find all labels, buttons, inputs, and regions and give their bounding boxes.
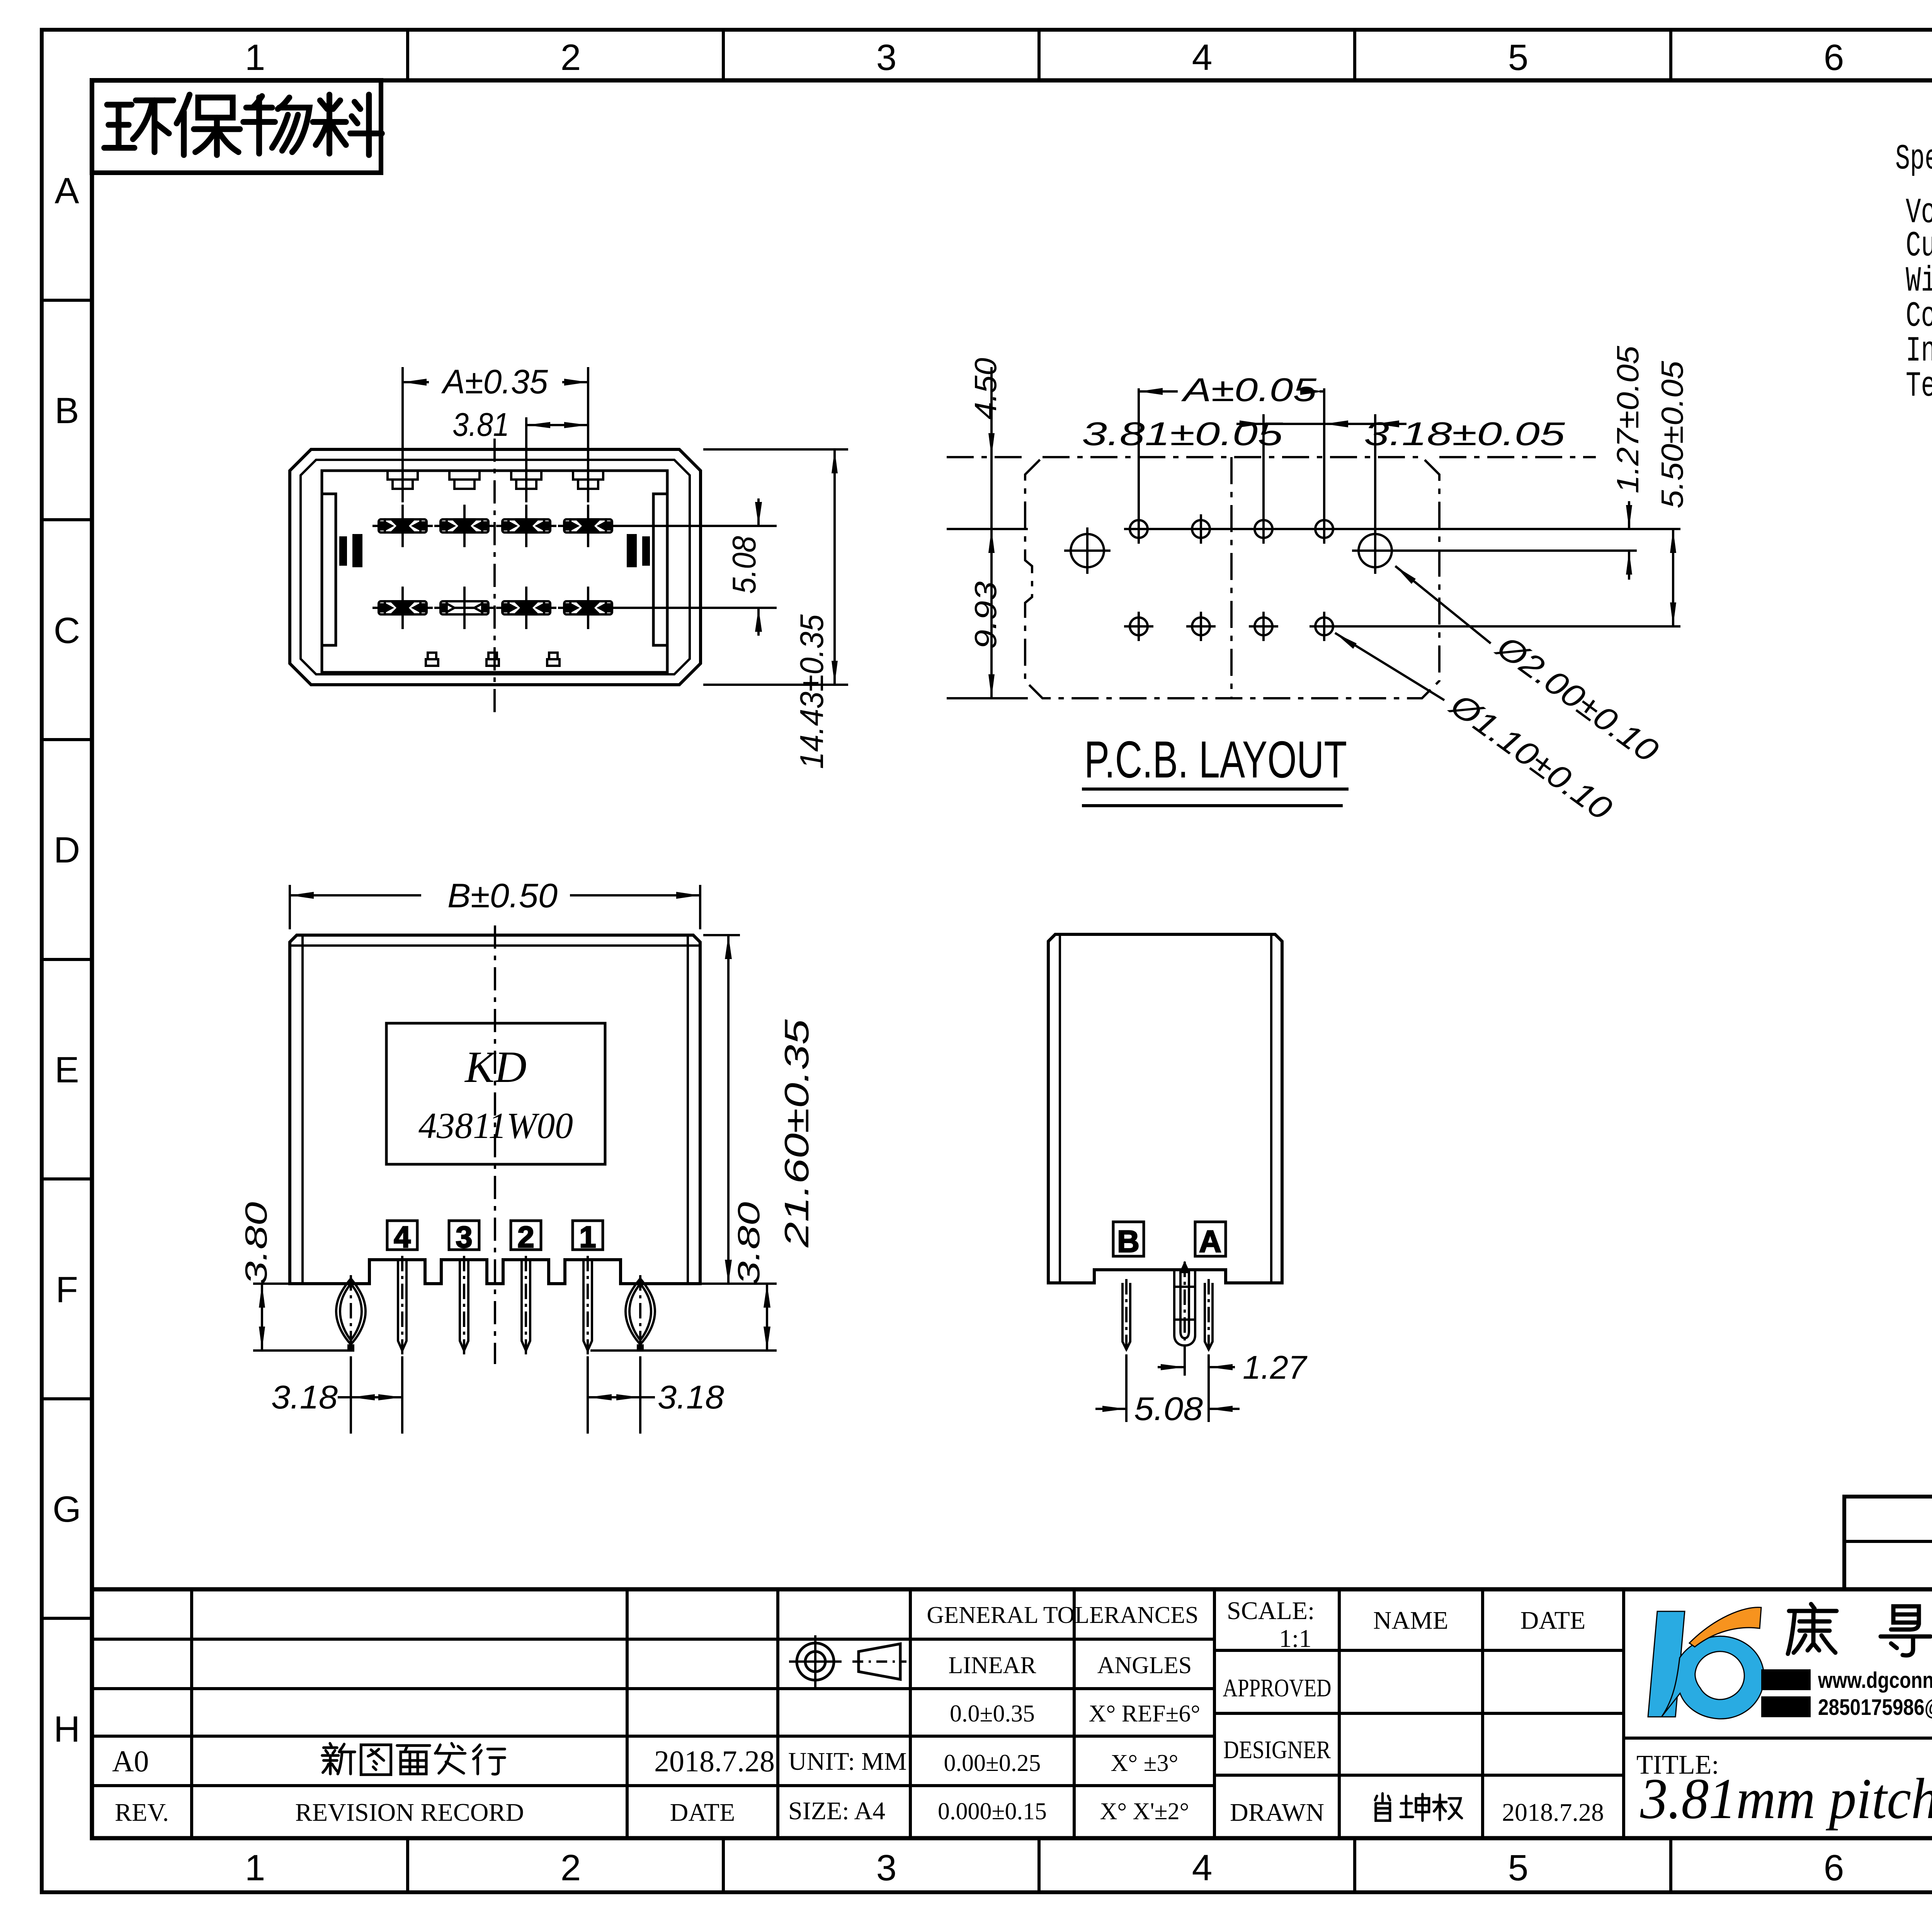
svg-text:43811W00: 43811W00 (418, 1105, 573, 1146)
svg-text:1: 1 (579, 1220, 596, 1254)
svg-text:A0: A0 (112, 1744, 149, 1778)
svg-text:SIZE: A4: SIZE: A4 (788, 1797, 885, 1825)
svg-text:1.27±0.05: 1.27±0.05 (1611, 345, 1645, 493)
svg-text:REVISION RECORD: REVISION RECORD (295, 1798, 524, 1827)
svg-text:21.60±0.35: 21.60±0.35 (777, 1019, 816, 1248)
svg-text:0.0±0.35: 0.0±0.35 (950, 1701, 1035, 1727)
svg-text:2018.7.28: 2018.7.28 (1502, 1798, 1604, 1827)
svg-text:B: B (1117, 1224, 1139, 1259)
svg-text:5: 5 (1508, 1847, 1529, 1888)
svg-text:C: C (54, 610, 80, 651)
svg-text:4: 4 (394, 1220, 410, 1254)
svg-text:A±0.35: A±0.35 (441, 362, 548, 401)
svg-text:3: 3 (876, 1847, 897, 1888)
svg-text:1.27: 1.27 (1243, 1349, 1308, 1386)
svg-text:1: 1 (245, 37, 265, 78)
svg-text:2: 2 (561, 37, 581, 78)
svg-text:P.C.B. LAYOUT: P.C.B. LAYOUT (1084, 730, 1347, 789)
svg-text:G: G (53, 1489, 81, 1530)
svg-text:A: A (54, 170, 79, 211)
svg-text:B±0.50: B±0.50 (447, 876, 558, 915)
svg-text:Withstand Voltage : 1500V AC/m: Withstand Voltage : 1500V AC/minute (1906, 261, 1932, 301)
svg-text:NAME: NAME (1373, 1606, 1448, 1635)
svg-text:4: 4 (1192, 1847, 1213, 1888)
svg-text:X° X'±2°: X° X'±2° (1100, 1798, 1189, 1825)
svg-text:3: 3 (456, 1220, 472, 1254)
svg-text:6: 6 (1824, 1847, 1844, 1888)
svg-text:2: 2 (561, 1847, 581, 1888)
svg-text:5.08: 5.08 (726, 536, 763, 594)
svg-text:2018.7.28: 2018.7.28 (654, 1744, 775, 1778)
svg-text:2850175986@qq.com: 2850175986@qq.com (1818, 1695, 1932, 1720)
svg-text:3.18±0.05: 3.18±0.05 (1364, 416, 1565, 452)
svg-text:ANGLES: ANGLES (1097, 1652, 1192, 1679)
svg-text:UNIT: MM: UNIT: MM (788, 1747, 907, 1776)
svg-text:SCALE:: SCALE: (1227, 1597, 1315, 1625)
svg-text:F: F (56, 1269, 78, 1310)
svg-text:D: D (54, 830, 80, 871)
svg-text:5.50±0.05: 5.50±0.05 (1655, 361, 1689, 509)
svg-text:3.81mm pitch Dual Wafer: 3.81mm pitch Dual Wafer (1640, 1767, 1932, 1831)
svg-text:GENERAL TOLERANCES: GENERAL TOLERANCES (927, 1602, 1198, 1628)
svg-text:3.80: 3.80 (731, 1202, 766, 1285)
svg-text:3.18: 3.18 (271, 1379, 338, 1416)
svg-text:APPROVED: APPROVED (1223, 1674, 1332, 1702)
svg-text:A: A (1199, 1224, 1221, 1259)
svg-text:0.00±0.25: 0.00±0.25 (944, 1750, 1041, 1776)
svg-text:B: B (54, 390, 79, 431)
svg-text:www.dgconne.com: www.dgconne.com (1818, 1668, 1932, 1693)
svg-text:4.50: 4.50 (968, 358, 1003, 420)
svg-text:REV.: REV. (115, 1798, 169, 1827)
svg-text:5.08: 5.08 (1134, 1391, 1203, 1427)
svg-text:3.81±0.05: 3.81±0.05 (1082, 416, 1283, 452)
svg-text:3: 3 (876, 37, 897, 78)
svg-text:Temperature Range : -55°C~+105: Temperature Range : -55°C~+105°C (1906, 366, 1932, 407)
svg-text:2: 2 (517, 1220, 534, 1254)
svg-text:X° ±3°: X° ±3° (1111, 1750, 1179, 1776)
svg-text:DATE: DATE (670, 1798, 735, 1827)
svg-text:1: 1 (245, 1847, 265, 1888)
svg-text:DESIGNER: DESIGNER (1223, 1736, 1331, 1764)
svg-text:H: H (54, 1709, 80, 1750)
svg-text:0.000±0.15: 0.000±0.15 (938, 1798, 1047, 1825)
svg-text:Insulation Resistance : 1000V: Insulation Resistance : 1000V DC/1000MΩ(… (1906, 331, 1932, 371)
svg-text:9.93: 9.93 (968, 582, 1003, 649)
svg-text:E: E (54, 1050, 79, 1090)
svg-text:Specifications:: Specifications: (1895, 139, 1932, 179)
svg-text:4: 4 (1192, 37, 1213, 78)
svg-text:3.80: 3.80 (239, 1202, 273, 1285)
svg-text:3.81: 3.81 (452, 407, 509, 443)
svg-text:KD: KD (464, 1043, 527, 1092)
svg-text:A±0.05: A±0.05 (1181, 372, 1317, 408)
svg-text:DATE: DATE (1520, 1606, 1586, 1635)
svg-text:5: 5 (1508, 37, 1529, 78)
svg-text:Current Rating : 8A AC,DC: Current Rating : 8A AC,DC (1906, 226, 1932, 266)
svg-text:LINEAR: LINEAR (948, 1652, 1036, 1679)
svg-text:14.43±0.35: 14.43±0.35 (794, 614, 830, 769)
svg-text:6: 6 (1824, 37, 1844, 78)
svg-text:3.18: 3.18 (658, 1379, 724, 1416)
svg-text:X° REF±6°: X° REF±6° (1089, 1701, 1201, 1727)
svg-text:DRAWN: DRAWN (1230, 1798, 1324, 1827)
svg-text:1:1: 1:1 (1279, 1624, 1311, 1653)
